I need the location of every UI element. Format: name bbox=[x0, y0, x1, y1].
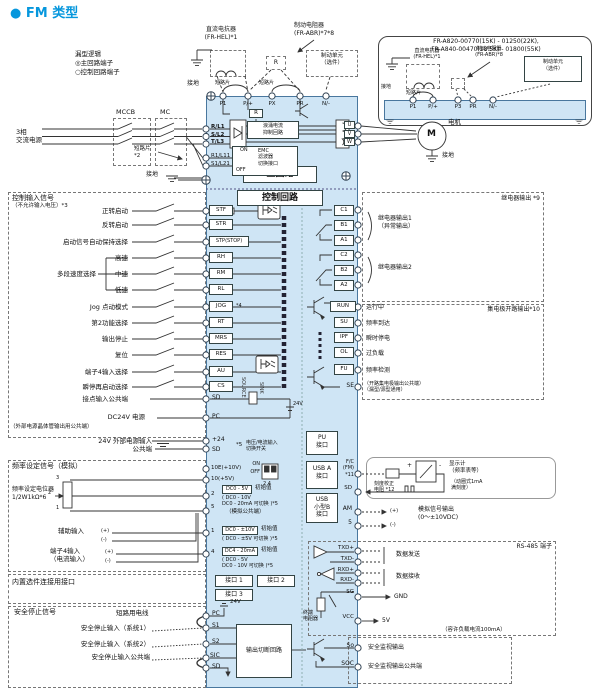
oc-label-ipf: 瞬时停电 bbox=[366, 335, 390, 343]
mccb-label: MCCB bbox=[116, 108, 135, 116]
soc-label: 安全监视输出公共端 bbox=[368, 663, 422, 671]
oc-term-su: SU bbox=[334, 317, 354, 328]
an-pot-pin2: 2 bbox=[48, 490, 51, 496]
meter-plus: + bbox=[407, 462, 412, 470]
sink-label: SINK bbox=[258, 382, 264, 412]
an-v2-init: 初始值 bbox=[255, 485, 272, 492]
source-label: SOURCE bbox=[240, 377, 246, 415]
rs-vcc: VCC bbox=[343, 614, 354, 621]
terminal-pplus: P/+ bbox=[238, 101, 258, 108]
legend-line3: ○控制回路端子 bbox=[75, 68, 120, 76]
terminal-s1l21: S1/L21 bbox=[211, 161, 230, 168]
rs-sg: SG bbox=[346, 589, 354, 596]
an-aux-label: 辅助输入 bbox=[58, 527, 84, 535]
ci-24v-label: 24V bbox=[293, 401, 303, 407]
ci-group-label: 多段速度选择 bbox=[57, 270, 96, 278]
brake-resistor-label: 制动电阻器 (FR-ABR)*7*8 bbox=[294, 22, 334, 37]
ci-term-rl: RL bbox=[209, 284, 233, 295]
ci-term-stp: STP(STOP) bbox=[209, 236, 249, 247]
am-plus: (+) bbox=[390, 508, 398, 514]
terminal-rl1: R/L1 bbox=[211, 124, 225, 131]
relay-term-b2: B2 bbox=[334, 265, 354, 276]
ci-label-mrs: 输出停止 bbox=[102, 335, 128, 343]
oc-label-fu: 频率检测 bbox=[366, 367, 390, 375]
relay-title: 继电器输出 *9 bbox=[501, 195, 540, 203]
soc-term: SOC bbox=[341, 660, 354, 668]
motor-ground-label: 接地 bbox=[442, 152, 454, 160]
rs-rxdm: RXD- bbox=[340, 577, 354, 584]
ci-pc-note: （外部电源晶体管输出用公共端） bbox=[10, 424, 93, 431]
ext-note: *5 bbox=[236, 442, 242, 449]
ci-term-pc: PC bbox=[212, 413, 220, 421]
terminal-px: PX bbox=[262, 101, 282, 108]
ci-label-rt: 第2功能选择 bbox=[91, 319, 128, 327]
opt-port1: 接口 1 bbox=[215, 575, 253, 587]
an-pot-pin3: 3 bbox=[56, 475, 59, 481]
ci-label-str: 反转启动 bbox=[102, 221, 128, 229]
saf-term-sd: SD bbox=[212, 663, 220, 671]
am-term-5: 5 bbox=[348, 519, 352, 527]
rs-txdm: TXD- bbox=[341, 556, 354, 563]
ci-subtitle: （不允许输入电压）*3 bbox=[12, 203, 68, 210]
dc-reactor-label: 直流电抗器 (FR-HEL)*1 bbox=[194, 26, 248, 41]
surge-suppression-box: 浪涌电流 抑制回路 bbox=[247, 121, 299, 139]
ext-term-24: +24 bbox=[212, 436, 225, 444]
ci-label-sd: 接点输入公共端 bbox=[83, 395, 129, 403]
legend-line2: ◎主回路端子 bbox=[75, 59, 113, 67]
saf-label-s2: 安全停止输入（系统2） bbox=[81, 640, 150, 648]
am-label: 模拟信号输出 (0～±10VDC) bbox=[418, 506, 458, 521]
an-aux-plus: (+) bbox=[101, 528, 109, 534]
opt-port2: 接口 2 bbox=[257, 575, 295, 587]
inset-terminal-p1: P1 bbox=[403, 104, 423, 111]
ci-label-rm: 中速 bbox=[115, 270, 128, 278]
saf-title: 安全停止信号 bbox=[14, 608, 56, 617]
saf-wire-label: 短路用电线 bbox=[116, 609, 149, 617]
ci-label-cs: 瞬停再启动选择 bbox=[83, 383, 129, 391]
ci-label-jog: Jog 点动模式 bbox=[90, 303, 128, 311]
terminal-pr: PR bbox=[290, 101, 310, 108]
ci-term-mrs: MRS bbox=[209, 333, 233, 344]
ci-label-res: 复位 bbox=[115, 351, 128, 359]
saf-term-sic: SIC bbox=[210, 652, 220, 660]
meter-cal-label: 刻度校正 电阻 *12 bbox=[374, 481, 394, 494]
ci-label-au: 端子4输入选择 bbox=[85, 368, 128, 376]
motor-m: M bbox=[427, 129, 436, 140]
meter-spec: （动圈式1mA 满刻度） bbox=[451, 479, 482, 492]
an-v2-initbox: DC0 - 5V bbox=[222, 485, 252, 494]
inset-reactor-label: 直流电抗器 (FR-HEL)*1 bbox=[402, 48, 452, 61]
meter-term-sd: SD bbox=[344, 485, 352, 492]
relay-term-c1: C1 bbox=[334, 205, 354, 216]
relay-term-a2: A2 bbox=[334, 280, 354, 291]
ci-term-rt: RT bbox=[209, 317, 233, 328]
ci-title: 控制输入信号 bbox=[12, 194, 54, 203]
terminal-n: N/- bbox=[316, 101, 336, 108]
ext-24v-label: 24V 外部电源输入 bbox=[98, 437, 152, 445]
an-term-5: 5 bbox=[211, 504, 215, 511]
terminal-p1: P1 bbox=[213, 101, 233, 108]
relay-term-a1: A1 bbox=[334, 235, 354, 246]
terminal-u: U bbox=[344, 121, 355, 129]
terminal-v: V bbox=[344, 130, 355, 138]
an-title: 频率设定信号（模拟） bbox=[12, 462, 82, 471]
oc-term-se: SE bbox=[346, 382, 354, 390]
emc-label: EMC 滤波器 切换接口 bbox=[258, 148, 278, 167]
an-dip-on: ON bbox=[252, 461, 260, 467]
an-v4-alt: ( DC0 - 5V DC0 - 10V 可切换 )*5 bbox=[222, 557, 273, 570]
meter-term-fc: F/C (FM) *11 bbox=[343, 459, 354, 478]
oc-term-ipf: IPF bbox=[334, 332, 354, 343]
am-term: AM bbox=[343, 505, 352, 513]
an-term-2: 2 bbox=[211, 491, 215, 498]
terminal-r1l11: R1/L11 bbox=[211, 153, 230, 160]
an-term-1: 1 bbox=[211, 528, 215, 535]
emc-off-label: OFF bbox=[236, 167, 246, 173]
ci-term-jog: JOG bbox=[209, 301, 233, 312]
rs-note: （容许负载电流100mA） bbox=[442, 627, 506, 634]
output-shutoff-box: 输出切断回路 bbox=[236, 624, 292, 678]
an-pot-pin1: 1 bbox=[56, 505, 59, 511]
saf-term-s2: S2 bbox=[212, 638, 220, 646]
saf-term-s1: S1 bbox=[212, 622, 220, 630]
oc-label-se: （开路集电极输出公共端） （漏型/源型通用） bbox=[364, 381, 424, 394]
ci-term-stf: STF bbox=[209, 205, 233, 216]
an-t4-plus: (+) bbox=[105, 549, 113, 555]
usb-b-port: USB 小型B 接口 bbox=[306, 493, 338, 523]
saf-term-pc: PC bbox=[212, 610, 220, 618]
relay-out2-label: 继电器输出2 bbox=[378, 264, 412, 272]
an-dip-off: OFF bbox=[250, 469, 260, 475]
rs-txdp: TXD+ bbox=[338, 545, 354, 552]
wiring-diagram-page: R 制动单元 （选件） bbox=[0, 0, 600, 697]
relay-term-c2: C2 bbox=[334, 250, 354, 261]
meter-minus: - bbox=[439, 462, 441, 470]
saf-24v: 24V bbox=[230, 599, 241, 606]
an-term-4: 4 bbox=[211, 549, 215, 556]
meter-name: 显示计 （频率表等） bbox=[449, 461, 482, 475]
ci-label-rl: 低速 bbox=[115, 286, 128, 294]
ci-label-rh: 高速 bbox=[115, 254, 128, 262]
ci-term-str: STR bbox=[209, 219, 233, 230]
oc-term-fu: FU bbox=[334, 364, 354, 375]
ci-term-rm: RM bbox=[209, 268, 233, 279]
ci-term-sd: SD bbox=[212, 394, 220, 402]
motor-label: 电机 bbox=[448, 118, 461, 126]
opt-title: 内置选件连接用接口 bbox=[12, 578, 75, 587]
saf-label-s1: 安全停止输入（系统1） bbox=[81, 624, 150, 632]
ext-switch-label: 电压/电流输入 切换开关 bbox=[246, 440, 278, 453]
usb-a-port: USB A 接口 bbox=[306, 461, 338, 489]
power-source-label: 3相 交流电源 bbox=[16, 128, 42, 144]
jumper1-label: 短路片 bbox=[215, 80, 230, 86]
inset-terminal-pplus: P/+ bbox=[423, 104, 443, 111]
rs-term-res-label: 终端 电阻器 bbox=[303, 610, 318, 623]
ci-term-res: RES bbox=[209, 349, 233, 360]
jumper-note-label: 短路片 *2 bbox=[134, 146, 151, 160]
oc-label-run: 运行中 bbox=[366, 304, 384, 312]
an-v2-alt: ( DC0 - 10V DC0 - 20mA 可切换 )*5 bbox=[222, 495, 278, 508]
ci-label-stp: 启动信号自动保持选择 bbox=[63, 238, 128, 246]
so-term: So bbox=[347, 642, 354, 650]
inset-jumper-label: 短路片 bbox=[406, 90, 421, 96]
rs-send-label: 数据发送 bbox=[396, 551, 420, 559]
ext-common-label: 公共端 bbox=[133, 445, 153, 453]
ext-term-sd: SD bbox=[212, 446, 220, 454]
inset-brake-unit-box: 制动单元 （选件） bbox=[524, 56, 582, 82]
legend-line1: 漏型逻辑 bbox=[75, 50, 101, 58]
an-term4-label: 端子4输入 （电流输入） bbox=[50, 547, 89, 563]
ci-term-cs: CS bbox=[209, 381, 233, 392]
oc-label-su: 频率到达 bbox=[366, 320, 390, 328]
oc-term-run: RUN bbox=[330, 301, 356, 312]
terminal-w: W bbox=[344, 138, 355, 146]
an-common: （模拟公共端） bbox=[226, 509, 265, 516]
oc-title: 集电极开路输出*10 bbox=[487, 306, 540, 314]
pu-port: PU 接口 bbox=[306, 431, 338, 455]
saf-label-common: 安全停止输入公共端 bbox=[92, 653, 151, 661]
rs-rxdp: RXD+ bbox=[338, 567, 354, 574]
an-aux-minus: (-) bbox=[101, 537, 107, 543]
oc-term-ol: OL bbox=[334, 347, 354, 358]
pe-ground-label: 接地 bbox=[146, 171, 158, 179]
control-circuit-label: 控制回路 bbox=[237, 190, 323, 206]
inset-ground-label: 接地 bbox=[381, 84, 391, 90]
rs485-title: RS-485 端子 bbox=[516, 543, 552, 551]
an-v1-initbox: DC0 - ±10V bbox=[222, 526, 258, 535]
rs-recv-label: 数据接收 bbox=[396, 573, 420, 581]
mc-label: MC bbox=[160, 108, 170, 116]
an-v4-initbox: DC4 - 20mA bbox=[222, 547, 258, 556]
rs-5v-label: 5V bbox=[382, 617, 390, 625]
reactor-ground-label: 接地 bbox=[187, 80, 199, 88]
so-label: 安全监视输出 bbox=[368, 644, 404, 652]
relay-out1-label: 继电器输出1 （异常输出） bbox=[378, 215, 414, 230]
oc-label-ol: 过负载 bbox=[366, 350, 384, 358]
inset-terminal-pr: PR bbox=[463, 104, 483, 111]
an-term-10: 10(+5V) bbox=[211, 476, 234, 483]
an-v4-init: 初始值 bbox=[261, 547, 278, 554]
ci-label-pc: DC24V 电源 bbox=[108, 413, 145, 421]
inset-terminal-n: N/- bbox=[483, 104, 503, 111]
relay-term-b1: B1 bbox=[334, 220, 354, 231]
ci-jog-note: *4 bbox=[236, 303, 242, 309]
an-v1-alt: ( DC0 - ±5V 可切换 )*5 bbox=[222, 536, 278, 542]
inrush-r-box: R bbox=[249, 109, 263, 118]
an-term-10e: 10E(+10V) bbox=[211, 465, 241, 472]
jumper2-label: 短路片 bbox=[259, 80, 274, 86]
ci-term-au: AU bbox=[209, 366, 233, 377]
terminal-sl2: S/L2 bbox=[211, 132, 224, 139]
inset-brake-resistor-label: 制动电阻器 (FR-ABR)*8 bbox=[462, 46, 516, 59]
emc-on-label: ON bbox=[240, 147, 248, 153]
am-minus: (-) bbox=[390, 522, 396, 528]
terminal-tl3: T/L3 bbox=[211, 139, 224, 146]
an-v1-init: 初始值 bbox=[261, 526, 278, 533]
page-title: ● FM 类型 bbox=[10, 6, 78, 22]
an-t4-minus: (-) bbox=[105, 558, 111, 564]
ci-term-rh: RH bbox=[209, 252, 233, 263]
rs-gnd-label: GND bbox=[394, 593, 408, 601]
ci-label-stf: 正转启动 bbox=[102, 207, 128, 215]
